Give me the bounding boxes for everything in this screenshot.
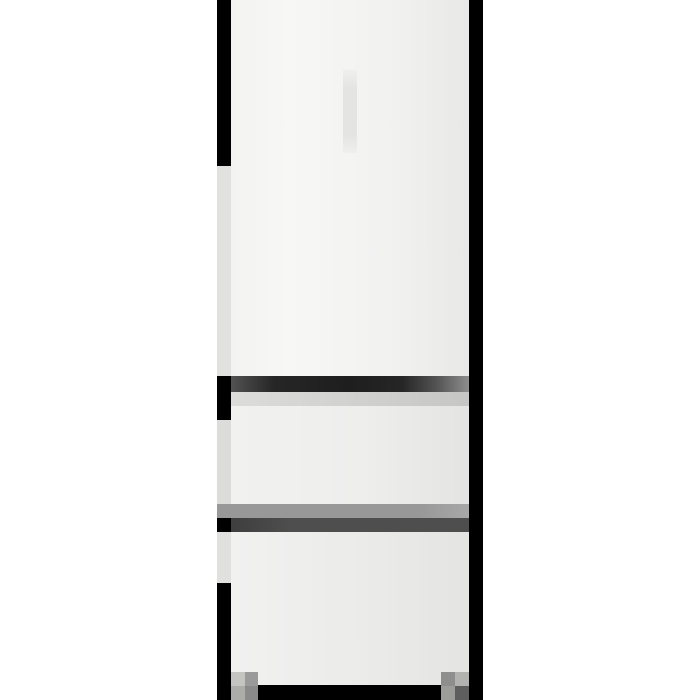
foot-shade-block <box>245 672 259 686</box>
drawer-gap-highlight <box>217 504 469 518</box>
lower-freezer-drawer <box>231 532 469 687</box>
edge-segment-dark <box>217 376 231 420</box>
edge-segment-light <box>217 420 231 504</box>
fridge-right-edge-shadow <box>469 0 483 700</box>
left-foot <box>231 672 258 700</box>
foot-shade-block <box>441 686 455 700</box>
edge-segment-dark <box>217 583 231 700</box>
edge-segment-dark <box>217 518 231 532</box>
foot-shade-block <box>455 672 469 686</box>
foot-shade-block <box>231 686 245 700</box>
right-foot <box>441 672 469 700</box>
edge-segment-dark <box>217 0 231 166</box>
edge-segment-light <box>217 532 231 583</box>
edge-segment-light <box>217 166 231 376</box>
fridge-left-edge-shadow <box>217 0 231 700</box>
foot-shade-block <box>455 686 469 700</box>
drawer-gap-shadow <box>231 518 469 532</box>
upper-drawer-top-edge <box>231 392 469 406</box>
door-gap-shadow <box>231 376 469 392</box>
upper-freezer-drawer <box>231 406 469 504</box>
fridge-door <box>231 0 469 376</box>
image-caption: White three-door refrigerator, front vie… <box>0 0 1 1</box>
door-handle-recess <box>343 70 357 153</box>
foot-shade-block <box>231 672 245 686</box>
foot-shade-block <box>441 672 455 686</box>
product-photo: White three-door refrigerator, front vie… <box>0 0 700 700</box>
foot-shade-block <box>245 686 259 700</box>
